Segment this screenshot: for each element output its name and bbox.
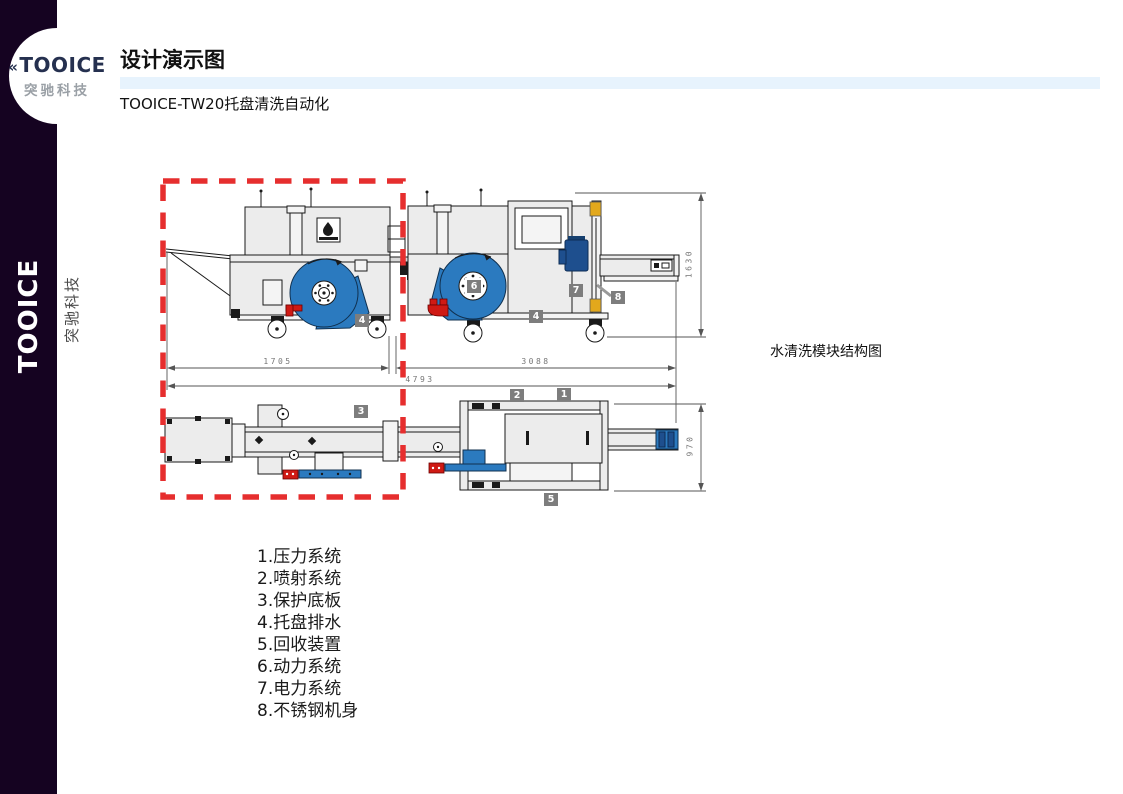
logo-chevron-icon: « [8,58,18,76]
sidebar-vertical-brand: TOOICE [14,246,44,386]
part-badge-4-left: 4 [355,314,369,327]
slide-page: « TOOICE 突驰科技 TOOICE 突驰科技 设计演示图 TOOICE-T… [0,0,1123,794]
company-logo: « TOOICE 突驰科技 [9,28,105,124]
dim-side-height: 1630 [685,244,694,284]
dim-plan-height: 970 [686,426,695,466]
logo-tagline: 突驰科技 [24,79,90,99]
part-badge-8: 8 [611,291,625,304]
part-badge-1: 1 [557,388,571,401]
plan-view [165,401,678,490]
dim-right-span: 3088 [506,357,566,366]
side-view [166,188,679,343]
logo-wordmark: « TOOICE [8,53,106,77]
dim-left-span: 1705 [248,357,308,366]
part-badge-7: 7 [569,284,583,297]
part-badge-5: 5 [544,493,558,506]
part-badge-2: 2 [510,389,524,402]
dim-total-span: 4793 [390,375,450,384]
part-badge-6: 6 [467,280,481,293]
part-badge-4-right: 4 [529,310,543,323]
logo-brand-text: TOOICE [19,53,105,77]
part-badge-3: 3 [354,405,368,418]
